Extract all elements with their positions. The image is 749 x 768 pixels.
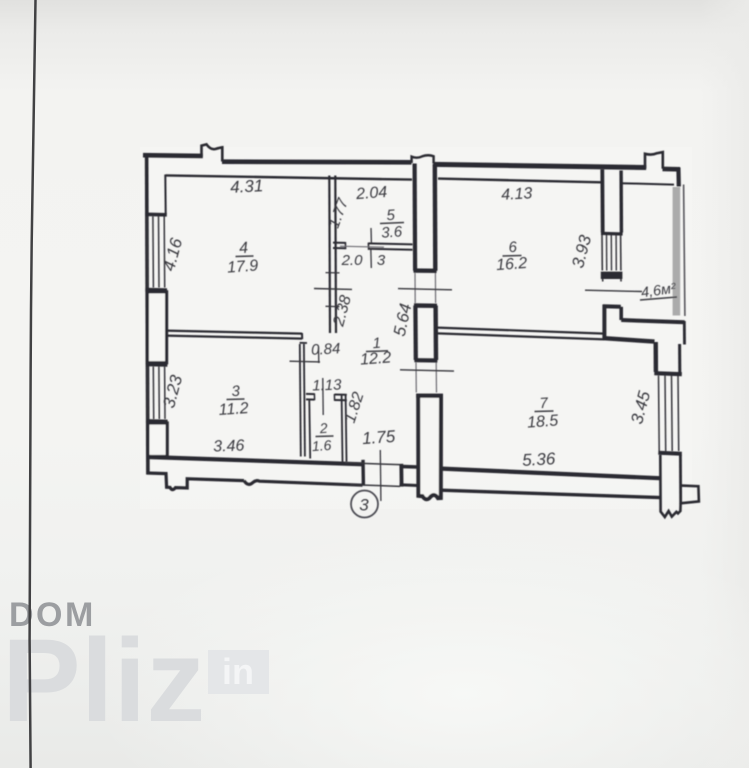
- svg-text:1.13: 1.13: [312, 376, 342, 394]
- svg-text:2.04: 2.04: [355, 184, 388, 203]
- svg-text:2: 2: [318, 420, 328, 437]
- svg-text:17.9: 17.9: [227, 257, 259, 276]
- svg-text:1.6: 1.6: [311, 437, 332, 454]
- svg-text:18.5: 18.5: [527, 412, 559, 431]
- svg-text:1.75: 1.75: [361, 427, 396, 448]
- svg-text:3: 3: [377, 252, 386, 269]
- svg-text:16.2: 16.2: [496, 255, 528, 274]
- svg-text:3: 3: [359, 496, 369, 515]
- svg-text:2.0: 2.0: [341, 252, 364, 269]
- svg-text:0.84: 0.84: [311, 340, 341, 359]
- svg-text:4: 4: [239, 240, 249, 258]
- svg-text:4.31: 4.31: [230, 176, 264, 197]
- svg-text:5.36: 5.36: [522, 449, 557, 470]
- svg-text:12.2: 12.2: [360, 349, 392, 368]
- svg-text:4.13: 4.13: [501, 185, 533, 204]
- svg-text:11.2: 11.2: [218, 400, 249, 419]
- svg-text:3.46: 3.46: [213, 437, 245, 455]
- svg-text:in: in: [222, 651, 254, 692]
- svg-text:3.6: 3.6: [381, 223, 404, 241]
- svg-text:Pliz: Pliz: [2, 615, 205, 747]
